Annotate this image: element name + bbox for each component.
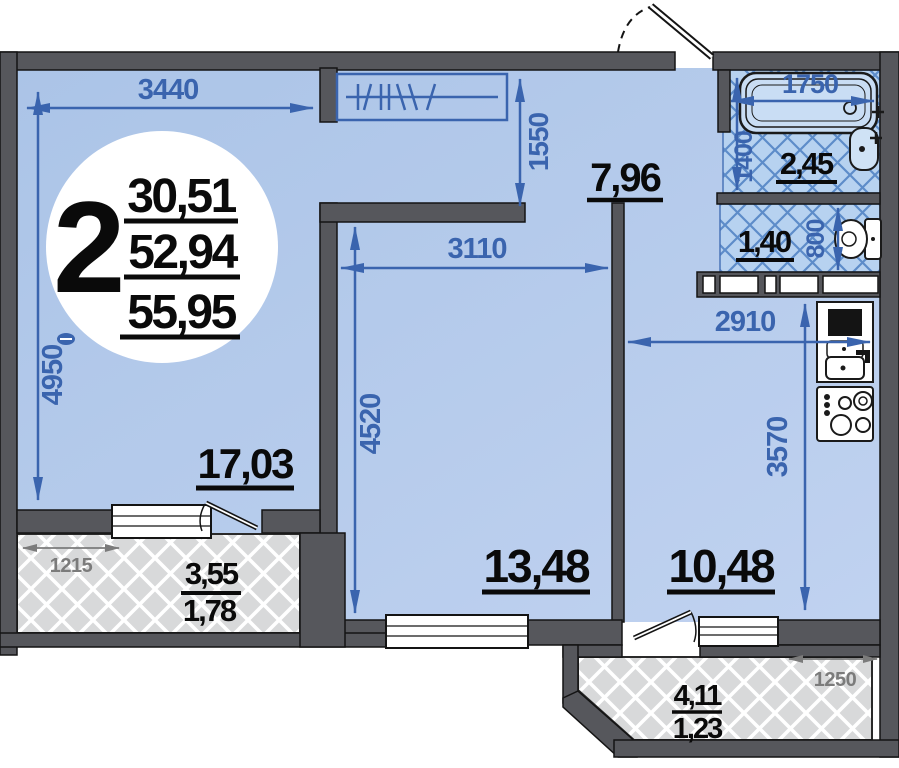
floor-plan: 3440 4950 1550 3110 4520 2910 3570 1750 … [0,0,899,768]
dim-kitchen-width: 2910 [715,306,776,338]
dim-closet-depth: 1550 [523,112,554,171]
toilet-bowl [835,219,881,259]
label-living-area: 17,03 [197,440,293,487]
wall-living-bottom-right [262,510,320,533]
label-hallway-area: 7,96 [590,156,661,200]
wall-left [0,52,17,655]
stove [817,387,873,441]
wall-bathroom-left [718,70,730,132]
wall-living-bottom-left [17,510,118,533]
label-balcony-right-counted: 1,23 [673,713,723,745]
wall-right [880,52,899,757]
label-balcony-left-counted: 1,78 [183,593,237,628]
dim-toilet-width: 800 [802,220,830,259]
wall-living-stub [320,68,337,122]
dim-balcony-right: 1250 [814,669,857,691]
entrance-door [618,6,712,57]
wall-bedroom-top [320,203,525,222]
window-bedroom [386,615,528,648]
dim-tub-length: 1750 [782,69,838,99]
label-balcony-left-total: 3,55 [185,556,239,591]
wall-top-right [713,52,899,70]
entrance-door-swing-arc [618,7,650,52]
label-kitchen-area: 10,48 [668,540,775,592]
wall-bedroom-kitchen [612,203,624,622]
dim-balcony-left: 1215 [50,555,93,577]
badge-total-area: 55,95 [127,286,236,339]
washbasin [850,128,882,170]
apartment-badge: 2 30,51 52,94 55,95 [46,131,278,363]
wall-bottom-c [775,620,880,645]
badge-apartment-area: 52,94 [128,226,238,279]
wall-balcony-left-right [300,533,345,647]
dim-bathroom-width: 1400 [730,131,758,183]
label-bedroom-area: 13,48 [483,540,590,592]
label-balcony-right-total: 4,11 [674,680,723,712]
window-kitchen-balcony [699,617,778,646]
stove-knob [824,394,830,400]
wall-balcony-right-bottom [614,740,899,757]
wall-bathroom-toilet-divider [717,193,880,204]
stove-knob [824,410,830,416]
label-bathroom-area: 2,45 [780,146,834,181]
window-living-balcony [112,505,211,538]
dim-living-width: 3440 [138,74,199,106]
stove-knob [824,402,830,408]
label-toilet-area: 1,40 [738,224,791,259]
dim-bedroom-height: 4520 [355,394,387,455]
dim-kitchen-height: 3570 [762,417,794,478]
wall-bottom-b [525,620,622,645]
dim-bedroom-width: 3110 [448,233,507,265]
wall-niches [703,276,878,293]
floor-plan-page: 3440 4950 1550 3110 4520 2910 3570 1750 … [0,0,899,768]
badge-room-count: 2 [53,174,123,320]
badge-living-area: 30,51 [127,170,236,223]
dim-living-height: 4950 [37,345,69,406]
